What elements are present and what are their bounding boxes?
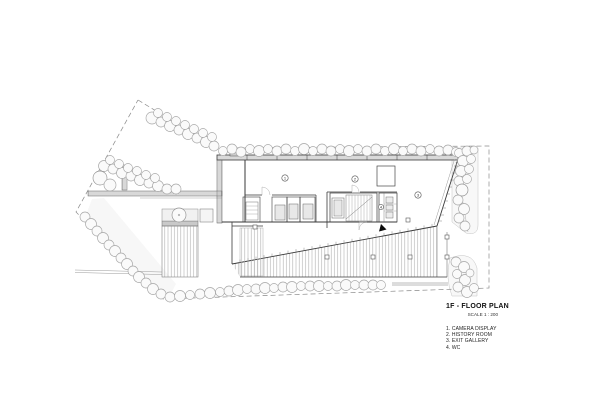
title-block: 1F - FLOOR PLAN SCALE 1 : 200 1. CAMERA … — [446, 303, 516, 351]
room-tag-4: 4 — [378, 204, 383, 209]
room-tag-3: 3 — [415, 192, 421, 198]
stair-core — [330, 193, 377, 222]
floor-plan-sheet: 1 2 3 4 1F - FLOOR PLAN SCALE 1 : 200 1.… — [0, 0, 600, 400]
drawing-title: 1F - FLOOR PLAN — [446, 303, 516, 310]
drawing-scale: SCALE 1 : 200 — [446, 312, 498, 317]
planter-boxes — [162, 209, 213, 222]
room-tag-1: 1 — [282, 175, 288, 181]
room-tag-2: 2 — [352, 176, 358, 182]
west-wall — [217, 160, 222, 223]
trees-mid-left — [93, 156, 181, 195]
legend-item-4: 4. WC — [446, 345, 516, 351]
storage-room — [377, 166, 395, 186]
planter-tree — [172, 208, 186, 222]
trees-upper-left — [146, 109, 219, 152]
entrance-arrow — [379, 224, 387, 232]
service-rooms — [243, 197, 315, 222]
building — [217, 150, 468, 285]
trees-bottom-row — [165, 280, 386, 303]
gallery-steps — [232, 224, 437, 277]
legend: 1. CAMERA DISPLAY 2. HISTORY ROOM 3. EXI… — [446, 326, 516, 352]
timber-deck — [162, 221, 198, 277]
